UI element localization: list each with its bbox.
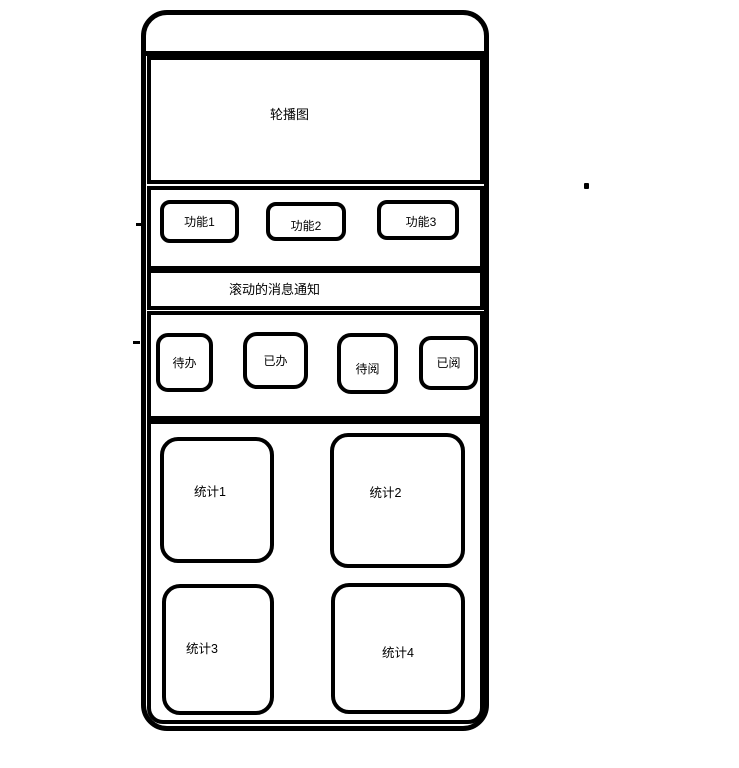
right-tick-mark-functions	[481, 225, 486, 228]
badge-done-label: 已办	[263, 355, 287, 367]
scrolling-notice-label: 滚动的消息通知	[229, 283, 320, 296]
carousel-label: 轮播图	[270, 108, 309, 121]
left-tick-mark-badges	[133, 341, 140, 344]
left-tick-mark-functions	[136, 223, 142, 226]
stat-card-4[interactable]: 统计4	[331, 583, 465, 714]
stat-card-3[interactable]: 统计3	[162, 584, 274, 715]
function-button-1[interactable]: 功能1	[160, 200, 239, 243]
stat-card-2[interactable]: 统计2	[330, 433, 465, 568]
wireframe-canvas: 轮播图 功能1 功能2 功能3 滚动的消息通知 待办 已办 待阅 已阅 统计1 …	[0, 0, 739, 768]
stat-card-3-label: 统计3	[186, 643, 218, 656]
function-button-2-label: 功能2	[291, 220, 322, 232]
function-button-1-label: 功能1	[184, 216, 215, 228]
badge-toread-button[interactable]: 待阅	[337, 333, 398, 394]
stat-card-4-label: 统计4	[382, 647, 414, 660]
badge-todo-button[interactable]: 待办	[156, 333, 213, 392]
badge-read-button[interactable]: 已阅	[419, 336, 478, 390]
stat-card-1[interactable]: 统计1	[160, 437, 274, 563]
badge-read-label: 已阅	[436, 357, 460, 369]
function-button-3-label: 功能3	[406, 216, 437, 228]
carousel-placeholder[interactable]: 轮播图	[147, 56, 484, 184]
stray-dot-mark	[584, 183, 589, 189]
function-button-2[interactable]: 功能2	[266, 202, 346, 241]
right-tick-mark-badges	[483, 345, 488, 349]
function-button-3[interactable]: 功能3	[377, 200, 459, 240]
badge-toread-label: 待阅	[355, 363, 379, 375]
badge-todo-label: 待办	[172, 357, 196, 369]
badge-done-button[interactable]: 已办	[243, 332, 308, 389]
stat-card-2-label: 统计2	[370, 487, 402, 500]
stat-card-1-label: 统计1	[194, 486, 226, 499]
scrolling-notice-bar: 滚动的消息通知	[147, 269, 484, 310]
